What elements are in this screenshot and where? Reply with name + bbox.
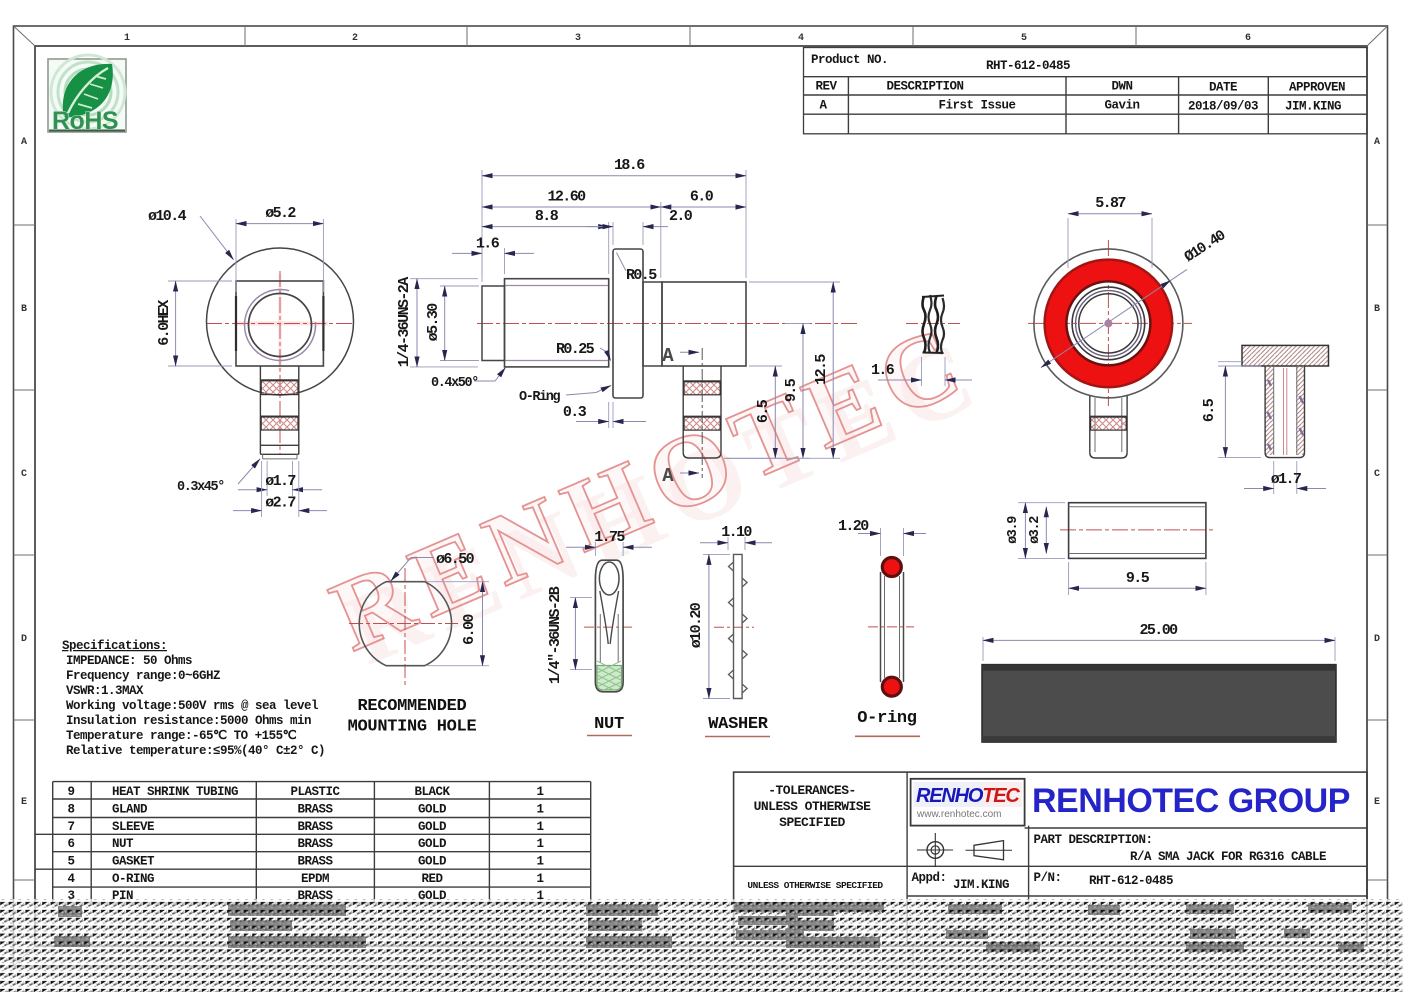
svg-text:GOLD: GOLD [418,855,447,869]
svg-text:O-Ring: O-Ring [519,390,561,405]
svg-text:6.0: 6.0 [690,189,714,206]
svg-text:C: C [21,469,27,480]
svg-text:Temperature range:-65℃ TO +155: Temperature range:-65℃ TO +155℃ [66,729,297,743]
svg-text:1/4-36UNS-2A: 1/4-36UNS-2A [396,277,413,367]
svg-text:BRASS: BRASS [297,855,333,869]
svg-text:First Issue: First Issue [938,99,1015,113]
svg-text:Insulation resistance:5000 Ohm: Insulation resistance:5000 Ohms min [66,714,311,728]
svg-text:Appd:: Appd: [912,871,947,885]
svg-text:6.5: 6.5 [755,399,772,423]
svg-text:IMPEDANCE: 50 Ohms: IMPEDANCE: 50 Ohms [66,654,192,668]
svg-text:O-RING: O-RING [112,872,154,886]
svg-text:BRASS: BRASS [297,820,333,834]
svg-text:D: D [1374,634,1380,645]
svg-text:8: 8 [67,803,74,817]
svg-text:DESCRIPTION: DESCRIPTION [886,80,963,94]
svg-text:R0.25: R0.25 [556,341,595,358]
svg-text:HEAT SHRINK TUBING: HEAT SHRINK TUBING [112,785,238,799]
svg-text:GOLD: GOLD [418,803,447,817]
svg-text:UNLESS OTHERWISE: UNLESS OTHERWISE [754,799,872,814]
svg-text:5: 5 [67,855,74,869]
svg-text:2: 2 [352,33,358,44]
svg-text:9.5: 9.5 [783,378,800,402]
svg-text:ø10.20: ø10.20 [688,602,705,648]
svg-text:Frequency range:0~6GHZ: Frequency range:0~6GHZ [66,669,220,683]
svg-text:ø5.30: ø5.30 [425,303,442,342]
svg-text:2018/09/03: 2018/09/03 [1188,100,1258,114]
svg-text:JIM.KING: JIM.KING [1285,100,1341,114]
svg-text:D: D [21,634,27,645]
svg-text:Ø10.40: Ø10.40 [1181,227,1229,266]
svg-text:4: 4 [798,33,804,44]
svg-text:GOLD: GOLD [418,820,447,834]
svg-text:RHT-612-0485: RHT-612-0485 [1089,874,1173,888]
svg-text:NUT: NUT [112,837,134,851]
svg-text:Working voltage:500V rms @ sea: Working voltage:500V rms @ sea level [66,699,318,713]
svg-text:B: B [21,304,27,315]
svg-text:1: 1 [536,837,543,851]
svg-text:A: A [819,99,827,113]
svg-text:1.20: 1.20 [838,518,869,535]
svg-text:3: 3 [575,33,581,44]
svg-text:5.87: 5.87 [1095,195,1125,212]
svg-text:ø5.2: ø5.2 [265,205,296,222]
svg-text:BRASS: BRASS [297,803,333,817]
svg-text:1.6: 1.6 [871,362,895,379]
svg-text:WASHER: WASHER [708,715,769,734]
svg-text:NUT: NUT [594,715,624,734]
svg-text:Product NO.: Product NO. [811,53,888,67]
svg-text:SLEEVE: SLEEVE [112,820,154,834]
svg-text:www.renhotec.com: www.renhotec.com [916,809,1001,820]
svg-text:9: 9 [67,785,74,799]
svg-text:25.00: 25.00 [1139,622,1178,639]
svg-text:1.10: 1.10 [721,524,752,541]
svg-text:DWN: DWN [1111,80,1132,94]
svg-text:B: B [1374,304,1380,315]
svg-text:E: E [1374,797,1380,808]
svg-text:RENHOTEC: RENHOTEC [916,785,1020,807]
svg-text:12.5: 12.5 [813,354,830,385]
svg-text:O-ring: O-ring [857,709,917,728]
svg-text:1: 1 [536,803,543,817]
svg-text:1.75: 1.75 [594,529,625,546]
svg-text:PART DESCRIPTION:: PART DESCRIPTION: [1034,833,1153,847]
svg-text:A: A [1374,137,1380,148]
svg-text:R0.5: R0.5 [626,267,657,284]
svg-text:Specifications:: Specifications: [62,639,167,653]
svg-text:A: A [21,137,27,148]
svg-text:E: E [21,797,27,808]
svg-text:BLACK: BLACK [414,785,450,799]
svg-text:6.5: 6.5 [1201,398,1218,422]
svg-text:18.6: 18.6 [614,157,645,174]
svg-text:8.8: 8.8 [535,208,559,225]
svg-text:ø3.9: ø3.9 [1006,516,1021,544]
svg-text:0.3: 0.3 [563,404,587,421]
svg-text:1: 1 [536,855,543,869]
svg-text:0.4x50°: 0.4x50° [431,376,478,391]
svg-text:MOUNTING HOLE: MOUNTING HOLE [348,718,477,737]
svg-text:1: 1 [536,820,543,834]
svg-text:VSWR:1.3MAX: VSWR:1.3MAX [66,684,144,698]
svg-text:Relative temperature:≤95%(40°: Relative temperature:≤95%(40° C±2° C) [66,744,325,758]
svg-text:RHT-612-0485: RHT-612-0485 [986,59,1070,73]
svg-text:1.6: 1.6 [476,236,500,253]
svg-text:RENHOTEC GROUP: RENHOTEC GROUP [1032,782,1350,820]
svg-text:APPROVEN: APPROVEN [1289,81,1345,95]
svg-text:1: 1 [124,33,130,44]
svg-text:UNLESS OTHERWISE SPECIFIED: UNLESS OTHERWISE SPECIFIED [747,880,883,891]
svg-text:GASKET: GASKET [112,855,155,869]
svg-text:1/4"-36UNS-2B: 1/4"-36UNS-2B [547,586,564,684]
svg-text:ø1.7: ø1.7 [1271,471,1301,488]
svg-text:DATE: DATE [1209,81,1237,95]
svg-text:A: A [662,465,674,487]
svg-text:ø3.2: ø3.2 [1028,516,1043,544]
svg-text:REV: REV [815,80,837,94]
svg-text:6.0HEX: 6.0HEX [156,300,173,346]
svg-text:PLASTIC: PLASTIC [290,785,340,799]
svg-text:ø6.50: ø6.50 [436,551,475,568]
svg-text:C: C [1374,469,1380,480]
svg-text:R/A SMA JACK FOR RG316 CABLE: R/A SMA JACK FOR RG316 CABLE [1130,850,1326,864]
svg-text:ø2.7: ø2.7 [265,495,295,512]
svg-text:12.60: 12.60 [547,189,586,206]
svg-text:1: 1 [536,872,543,886]
svg-text:Gavin: Gavin [1104,99,1139,113]
svg-text:4: 4 [67,872,75,886]
svg-text:2.0: 2.0 [669,208,693,225]
svg-text:A: A [662,345,674,367]
svg-text:6: 6 [1245,33,1251,44]
svg-text:9.5: 9.5 [1126,570,1150,587]
svg-text:7: 7 [67,820,74,834]
svg-text:5: 5 [1021,33,1027,44]
svg-text:RECOMMENDED: RECOMMENDED [358,697,467,716]
svg-text:GLAND: GLAND [112,803,148,817]
svg-text:ø1.7: ø1.7 [265,473,295,490]
svg-text:JIM.KING: JIM.KING [953,878,1009,892]
svg-text:GOLD: GOLD [418,837,447,851]
svg-text:SPECIFIED: SPECIFIED [779,815,845,830]
svg-text:6.00: 6.00 [461,614,478,645]
svg-text:-TOLERANCES-: -TOLERANCES- [768,783,856,798]
svg-text:6: 6 [67,837,74,851]
svg-text:ø10.4: ø10.4 [148,208,187,225]
svg-text:EPDM: EPDM [301,872,329,886]
svg-text:0.3x45°: 0.3x45° [177,480,224,495]
svg-text:BRASS: BRASS [297,837,333,851]
svg-text:RED: RED [421,872,443,886]
svg-text:P/N:: P/N: [1034,871,1062,885]
svg-text:1: 1 [536,785,543,799]
